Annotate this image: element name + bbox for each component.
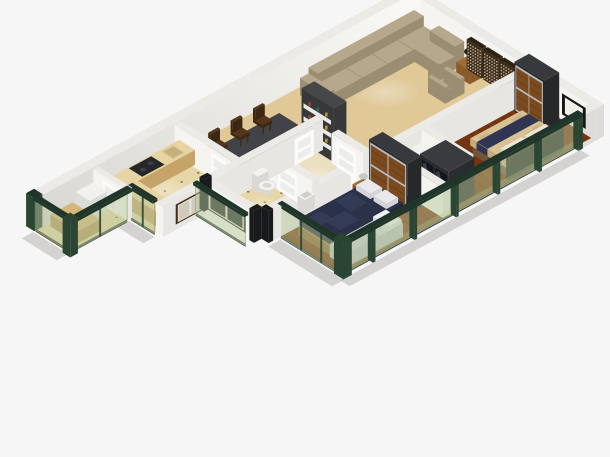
- notch-stub-wall: [262, 202, 282, 243]
- isometric-floorplan-scene: 3D isometric apartment floor plan render: [0, 0, 610, 457]
- floorplan-render: 3D isometric apartment floor plan render: [0, 0, 610, 457]
